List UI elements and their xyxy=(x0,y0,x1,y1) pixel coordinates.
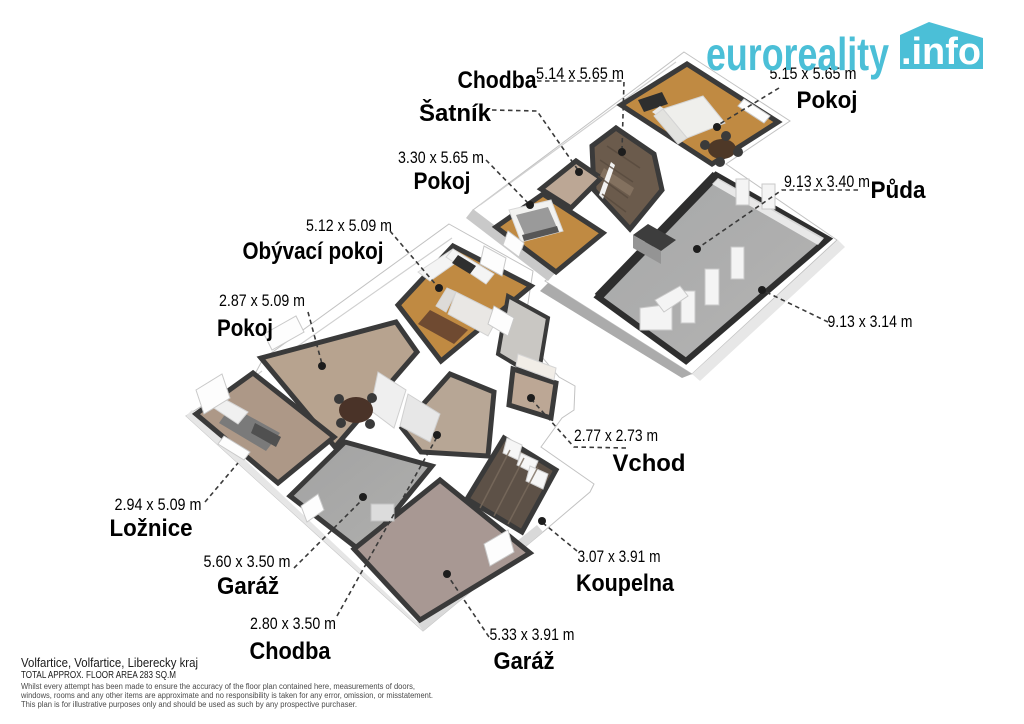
svg-text:Šatník: Šatník xyxy=(419,99,492,127)
svg-text:.info: .info xyxy=(901,31,981,73)
svg-text:9.13 x 3.14 m: 9.13 x 3.14 m xyxy=(828,312,913,331)
svg-text:TOTAL APPROX. FLOOR AREA 283 S: TOTAL APPROX. FLOOR AREA 283 SQ.M xyxy=(21,669,176,681)
svg-text:Garáž: Garáž xyxy=(494,648,555,675)
svg-text:Chodba: Chodba xyxy=(250,638,332,665)
svg-text:Chodba: Chodba xyxy=(458,67,538,94)
svg-text:Obývací pokoj: Obývací pokoj xyxy=(243,238,384,265)
svg-text:9.13 x 3.40 m: 9.13 x 3.40 m xyxy=(784,172,870,191)
svg-text:5.33 x 3.91 m: 5.33 x 3.91 m xyxy=(490,625,575,644)
svg-text:Pokoj: Pokoj xyxy=(217,315,273,342)
svg-text:2.87 x 5.09 m: 2.87 x 5.09 m xyxy=(219,291,305,310)
svg-text:2.94 x 5.09 m: 2.94 x 5.09 m xyxy=(115,495,202,514)
svg-text:Půda: Půda xyxy=(871,177,927,204)
svg-text:Koupelna: Koupelna xyxy=(576,570,675,597)
svg-text:euroreality: euroreality xyxy=(706,28,889,80)
svg-text:5.14 x 5.65 m: 5.14 x 5.65 m xyxy=(536,64,624,83)
svg-text:5.12 x 5.09 m: 5.12 x 5.09 m xyxy=(306,216,392,235)
svg-text:Whilst every attempt has been: Whilst every attempt has been made to en… xyxy=(21,682,415,691)
svg-text:windows, rooms and any other i: windows, rooms and any other items are a… xyxy=(20,691,433,700)
svg-text:2.77 x 2.73 m: 2.77 x 2.73 m xyxy=(574,426,658,445)
svg-text:3.07 x 3.91 m: 3.07 x 3.91 m xyxy=(578,547,661,566)
svg-text:Volfartice, Volfartice, Libere: Volfartice, Volfartice, Liberecky kraj xyxy=(21,655,198,670)
svg-text:3.30 x 5.65 m: 3.30 x 5.65 m xyxy=(398,148,484,167)
svg-text:2.80 x 3.50 m: 2.80 x 3.50 m xyxy=(250,614,336,633)
svg-text:This plan is for illustrative: This plan is for illustrative purposes o… xyxy=(21,700,357,709)
svg-text:Vchod: Vchod xyxy=(613,450,686,477)
svg-text:Garáž: Garáž xyxy=(217,573,279,600)
svg-text:5.60 x 3.50 m: 5.60 x 3.50 m xyxy=(204,552,291,571)
svg-text:Pokoj: Pokoj xyxy=(414,168,471,195)
svg-text:Ložnice: Ložnice xyxy=(110,515,193,542)
svg-text:Pokoj: Pokoj xyxy=(797,87,858,114)
